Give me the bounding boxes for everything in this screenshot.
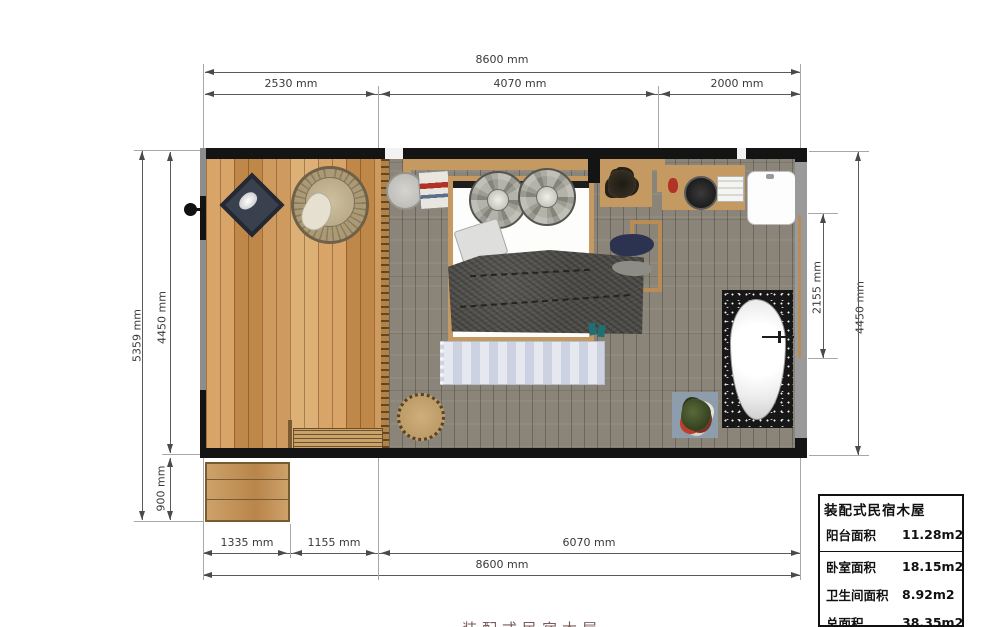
arrow-icon: [167, 511, 173, 520]
dim-left-total-line: [142, 151, 143, 520]
extension-line: [809, 455, 869, 456]
arrow-icon: [167, 444, 173, 453]
bottom-wall: [203, 448, 807, 458]
outdoor-cabinet: [205, 462, 290, 522]
dim-left-upper-line: [170, 152, 171, 453]
extension-line: [134, 521, 204, 522]
dim-top-segments-line: [205, 94, 800, 95]
table-row: 卧室面积 18.15m2: [820, 552, 962, 580]
extension-line: [378, 86, 379, 148]
top-wall: [203, 148, 807, 159]
folded-towels: [717, 176, 744, 202]
arrow-icon: [791, 91, 800, 97]
dim-top-seg1-label: 2530 mm: [251, 77, 331, 90]
right-wall: [795, 148, 807, 458]
extension-line: [162, 454, 204, 455]
dim-right-inner-line: [823, 214, 824, 358]
table-row: 总面积 38.35m2: [820, 608, 962, 627]
dim-top-seg2-label: 4070 mm: [480, 77, 560, 90]
wall-lamp-stem: [196, 208, 202, 211]
cabinet-divider: [207, 479, 288, 480]
extension-line: [203, 458, 204, 580]
row-label: 卫生间面积: [826, 585, 892, 604]
extension-line: [378, 458, 379, 580]
arrow-icon: [205, 69, 214, 75]
row-label: 阳台面积: [826, 525, 892, 544]
extension-line: [808, 358, 838, 359]
area-table: 装配式民宿木屋 阳台面积 11.28m2 卧室面积 18.15m2 卫生间面积 …: [818, 494, 964, 627]
arrow-icon: [366, 550, 375, 556]
sliding-glass-partition: [381, 159, 389, 448]
arrow-icon: [791, 550, 800, 556]
tub-faucet-handle-icon: [778, 331, 781, 343]
arrow-icon: [205, 91, 214, 97]
table-row: 卫生间面积 8.92m2: [820, 580, 962, 608]
washbasin: [747, 171, 796, 225]
dim-bottom-seg3-label: 6070 mm: [549, 536, 629, 549]
row-label: 卧室面积: [826, 557, 892, 576]
arrow-icon: [661, 91, 670, 97]
row-label: 总面积: [826, 613, 892, 627]
arrow-icon: [167, 458, 173, 467]
magazine-stack: [418, 170, 452, 210]
arrow-icon: [167, 152, 173, 161]
door-post: [657, 159, 665, 192]
bedside-rug: [440, 341, 605, 385]
row-value: 38.35m2: [902, 615, 963, 627]
extension-line: [203, 64, 204, 148]
right-wall-post: [795, 148, 807, 162]
arrow-icon: [791, 69, 800, 75]
arrow-icon: [203, 550, 212, 556]
arrow-icon: [293, 550, 302, 556]
interior-wall-post: [588, 159, 600, 183]
dim-top-total-label: 8600 mm: [462, 53, 542, 66]
dim-right-outer-line: [858, 152, 859, 455]
doormat-jamb: [288, 420, 292, 450]
dim-bottom-seg2-label: 1155 mm: [294, 536, 374, 549]
dim-bottom-total-label: 8600 mm: [462, 558, 542, 571]
floorplan-canvas: 8600 mm 2530 mm 4070 mm 2000 mm 5359 mm …: [0, 0, 990, 627]
arrow-icon: [791, 572, 800, 578]
extension-line: [134, 150, 204, 151]
dim-right-outer-label: 4450 mm: [854, 276, 867, 340]
round-woven-rug: [397, 393, 445, 441]
top-wall-gap: [385, 148, 403, 159]
table-row: 阳台面积 11.28m2: [820, 520, 962, 548]
arrow-icon: [366, 91, 375, 97]
dim-bottom-seg1-label: 1335 mm: [207, 536, 287, 549]
arrow-icon: [203, 572, 212, 578]
bathroom-door: [798, 215, 801, 358]
arrow-icon: [820, 214, 826, 223]
arrow-icon: [278, 550, 287, 556]
extension-line: [800, 458, 801, 580]
red-vase-icon: [668, 178, 678, 193]
arrow-icon: [646, 91, 655, 97]
top-wall-gap: [737, 148, 746, 159]
extension-line: [809, 151, 869, 152]
dim-top-total-line: [205, 72, 800, 73]
ceiling-fan-icon: [518, 168, 576, 226]
left-wall-post: [200, 196, 206, 240]
right-wall-post: [795, 438, 807, 458]
row-value: 8.92m2: [902, 587, 955, 602]
arrow-icon: [855, 446, 861, 455]
arrow-icon: [855, 152, 861, 161]
extension-line: [800, 64, 801, 148]
extension-line: [658, 86, 659, 148]
row-value: 11.28m2: [902, 527, 963, 542]
extension-line: [808, 213, 838, 214]
vanity-stool: [684, 176, 718, 210]
dim-bottom-total-line: [203, 575, 800, 576]
arrow-icon: [139, 151, 145, 160]
dim-right-inner-label: 2155 mm: [811, 256, 824, 320]
area-table-title: 装配式民宿木屋: [820, 496, 962, 520]
arrow-icon: [820, 349, 826, 358]
left-wall-post: [200, 390, 206, 458]
dim-left-lower-label: 900 mm: [155, 461, 168, 517]
drawing-caption-partial: 装配式民宿木屋: [462, 618, 602, 627]
cabinet-divider: [207, 499, 288, 500]
arrow-icon: [381, 550, 390, 556]
arrow-icon: [139, 511, 145, 520]
basin-faucet-icon: [766, 174, 774, 179]
dim-left-upper-label: 4450 mm: [156, 286, 169, 350]
extension-line: [290, 524, 291, 558]
dim-top-seg3-label: 2000 mm: [697, 77, 777, 90]
arrow-icon: [381, 91, 390, 97]
row-value: 18.15m2: [902, 559, 963, 574]
